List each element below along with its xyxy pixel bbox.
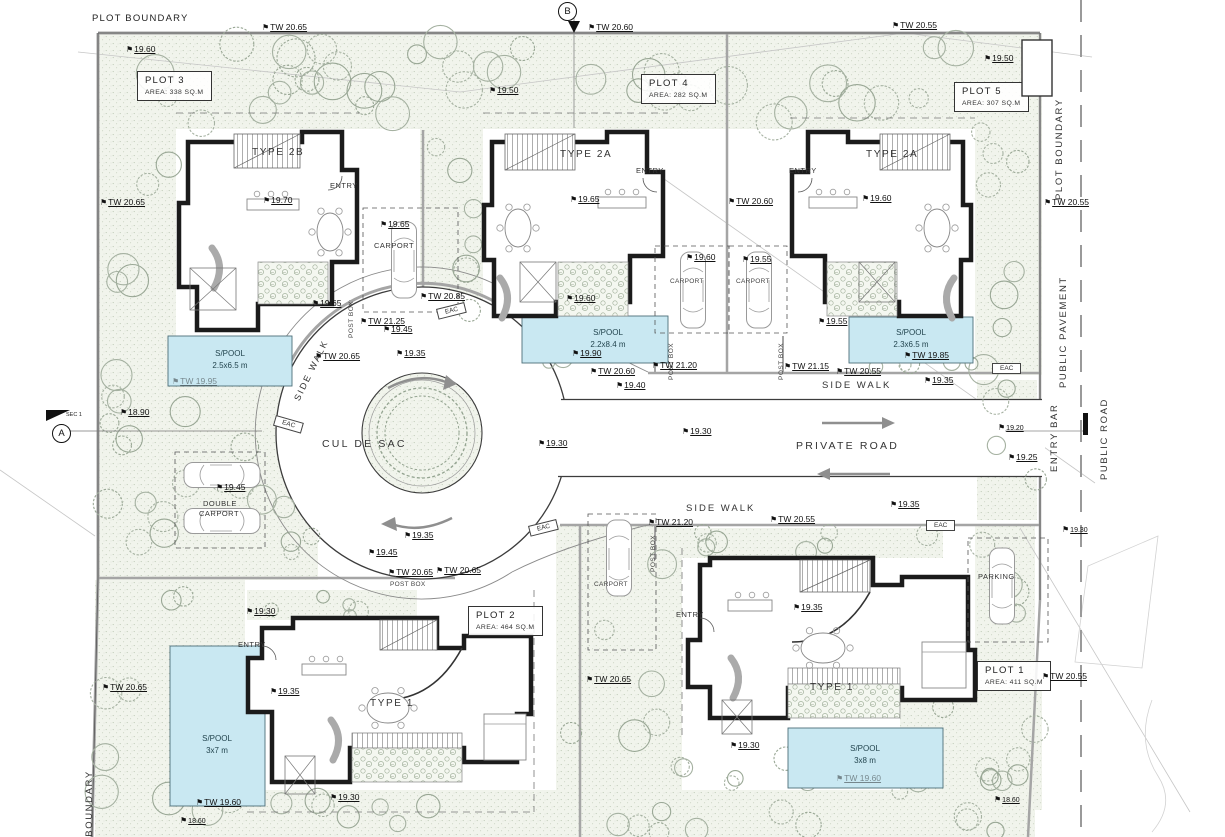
plot-name: PLOT 1 bbox=[985, 665, 1043, 676]
level-text: 19.60 bbox=[574, 293, 595, 303]
survey-marker-icon: ⚑ bbox=[616, 381, 623, 390]
level-19-55: ⚑19.55 bbox=[742, 254, 771, 264]
level-tw-20-65: ⚑TW 20.65 bbox=[262, 22, 307, 32]
level-19-45: ⚑19.45 bbox=[383, 324, 412, 334]
label-carport: CARPORT bbox=[199, 509, 239, 518]
label-post-box: POST BOX bbox=[650, 535, 657, 572]
level-tw-21-20: ⚑TW 21.20 bbox=[648, 517, 693, 527]
pool-size: 3x8 m bbox=[850, 756, 880, 765]
survey-marker-icon: ⚑ bbox=[588, 23, 595, 32]
level-19-60: ⚑19.60 bbox=[566, 293, 595, 303]
label-side-walk: SIDE WALK bbox=[822, 380, 891, 391]
level-text: 19.30 bbox=[338, 792, 359, 802]
level-text: TW 20.65 bbox=[396, 567, 433, 577]
label-eac: EAC bbox=[273, 415, 304, 434]
level-tw-20-65: ⚑TW 20.65 bbox=[586, 674, 631, 684]
annotation-layer: PLOT 3AREA: 338 SQ.MPLOT 4AREA: 282 SQ.M… bbox=[0, 0, 1225, 837]
survey-marker-icon: ⚑ bbox=[1042, 672, 1049, 681]
section-marker-a-note: SEC 1 bbox=[66, 412, 82, 418]
plot-area: AREA: 307 SQ.M bbox=[962, 100, 1021, 107]
level-19-30: ⚑19.30 bbox=[730, 740, 759, 750]
level-text: TW 19.60 bbox=[844, 773, 881, 783]
level-text: TW 20.60 bbox=[598, 366, 635, 376]
level-text: TW 21.20 bbox=[660, 360, 697, 370]
survey-marker-icon: ⚑ bbox=[770, 515, 777, 524]
plot-area: AREA: 282 SQ.M bbox=[649, 92, 708, 99]
level-19-30: ⚑19.30 bbox=[682, 426, 711, 436]
pool-size: 2.2x8.4 m bbox=[590, 340, 625, 349]
survey-marker-icon: ⚑ bbox=[396, 349, 403, 358]
survey-marker-icon: ⚑ bbox=[420, 292, 427, 301]
level-19-35: ⚑19.35 bbox=[404, 530, 433, 540]
level-text: 19.70 bbox=[271, 195, 292, 205]
survey-marker-icon: ⚑ bbox=[728, 197, 735, 206]
survey-marker-icon: ⚑ bbox=[586, 675, 593, 684]
plot-info-plot-1: PLOT 1AREA: 411 SQ.M bbox=[977, 661, 1051, 691]
level-text: 19.35 bbox=[932, 375, 953, 385]
site-plan: PLOT 3AREA: 338 SQ.MPLOT 4AREA: 282 SQ.M… bbox=[0, 0, 1225, 837]
level-text: 19.60 bbox=[134, 44, 155, 54]
plot-boundary-right-label: PLOT BOUNDARY bbox=[1054, 98, 1065, 200]
level-19-45: ⚑19.45 bbox=[368, 547, 397, 557]
level-text: 19.45 bbox=[224, 482, 245, 492]
survey-marker-icon: ⚑ bbox=[102, 683, 109, 692]
level-19-20: ⚑19.20 bbox=[998, 423, 1024, 432]
survey-marker-icon: ⚑ bbox=[818, 317, 825, 326]
survey-marker-icon: ⚑ bbox=[263, 196, 270, 205]
level-text: 18.60 bbox=[1002, 797, 1020, 804]
survey-marker-icon: ⚑ bbox=[784, 362, 791, 371]
level-text: TW 20.55 bbox=[778, 514, 815, 524]
level-tw-20-55: ⚑TW 20.55 bbox=[892, 20, 937, 30]
level-text: 19.35 bbox=[412, 530, 433, 540]
level-19-30: ⚑19.30 bbox=[246, 606, 275, 616]
plot-area: AREA: 464 SQ.M bbox=[476, 624, 535, 631]
level-text: 19.25 bbox=[1016, 452, 1037, 462]
plot-name: PLOT 3 bbox=[145, 75, 204, 86]
level-19-35: ⚑19.35 bbox=[890, 499, 919, 509]
survey-marker-icon: ⚑ bbox=[388, 568, 395, 577]
survey-marker-icon: ⚑ bbox=[180, 816, 187, 825]
survey-marker-icon: ⚑ bbox=[984, 54, 991, 63]
house-type-label: TYPE 2B bbox=[252, 147, 304, 158]
survey-marker-icon: ⚑ bbox=[330, 793, 337, 802]
level-tw-20-85: ⚑TW 20.85 bbox=[420, 291, 465, 301]
level-19-60: ⚑19.60 bbox=[126, 44, 155, 54]
public-pavement-label: PUBLIC PAVEMENT bbox=[1058, 276, 1069, 388]
level-text: TW 19.85 bbox=[912, 350, 949, 360]
level-text: 19.55 bbox=[826, 316, 847, 326]
label-entry: ENTRY bbox=[330, 181, 358, 190]
level-19-90: ⚑19.90 bbox=[572, 348, 601, 358]
level-tw-20-65: ⚑TW 20.65 bbox=[388, 567, 433, 577]
pool-size: 2.5x6.5 m bbox=[212, 361, 247, 370]
level-tw-20-55: ⚑TW 20.55 bbox=[1042, 671, 1087, 681]
survey-marker-icon: ⚑ bbox=[1062, 525, 1069, 534]
level-text: 19.55 bbox=[750, 254, 771, 264]
label-side-walk: SIDE WALK bbox=[686, 503, 755, 514]
level-text: 19.30 bbox=[546, 438, 567, 448]
level-text: TW 20.85 bbox=[428, 291, 465, 301]
label-private-road: PRIVATE ROAD bbox=[796, 440, 899, 452]
plot-area: AREA: 338 SQ.M bbox=[145, 89, 204, 96]
level-text: 19.90 bbox=[580, 348, 601, 358]
level-text: 19.35 bbox=[404, 348, 425, 358]
survey-marker-icon: ⚑ bbox=[246, 607, 253, 616]
label-carport: CARPORT bbox=[374, 241, 414, 250]
survey-marker-icon: ⚑ bbox=[360, 317, 367, 326]
survey-marker-icon: ⚑ bbox=[652, 361, 659, 370]
label-eac: EAC bbox=[992, 363, 1021, 374]
house-type-label: TYPE 2A bbox=[560, 149, 612, 160]
level-text: TW 20.55 bbox=[900, 20, 937, 30]
level-tw-20-60: ⚑TW 20.60 bbox=[728, 196, 773, 206]
pool-label: S/POOL bbox=[850, 744, 880, 753]
pool-size: 3x7 m bbox=[202, 746, 232, 755]
level-19-50: ⚑19.50 bbox=[984, 53, 1013, 63]
level-text: TW 21.15 bbox=[792, 361, 829, 371]
section-marker-b: B bbox=[558, 2, 577, 21]
plot-boundary-bottom-label: PLOT BOUNDARY bbox=[84, 770, 95, 837]
survey-marker-icon: ⚑ bbox=[836, 774, 843, 783]
plot-name: PLOT 4 bbox=[649, 78, 708, 89]
level-text: TW 20.65 bbox=[444, 565, 481, 575]
survey-marker-icon: ⚑ bbox=[404, 531, 411, 540]
level-text: 19.30 bbox=[738, 740, 759, 750]
label-entry: ENTRY bbox=[636, 166, 664, 175]
survey-marker-icon: ⚑ bbox=[383, 325, 390, 334]
survey-marker-icon: ⚑ bbox=[998, 423, 1005, 432]
survey-marker-icon: ⚑ bbox=[572, 349, 579, 358]
section-marker-b-arrow-icon bbox=[568, 21, 580, 33]
level-text: TW 20.60 bbox=[596, 22, 633, 32]
plot-info-plot-3: PLOT 3AREA: 338 SQ.M bbox=[137, 71, 212, 101]
label-carport: CARPORT bbox=[736, 278, 770, 285]
level-19-35: ⚑19.35 bbox=[270, 686, 299, 696]
level-text: 19.60 bbox=[694, 252, 715, 262]
level-tw-19-60: ⚑TW 19.60 bbox=[196, 797, 241, 807]
level-19-35: ⚑19.35 bbox=[924, 375, 953, 385]
level-tw-20-55: ⚑TW 20.55 bbox=[836, 366, 881, 376]
survey-marker-icon: ⚑ bbox=[262, 23, 269, 32]
level-text: 19.65 bbox=[388, 219, 409, 229]
level-text: 19.60 bbox=[870, 193, 891, 203]
house-type-label: TYPE 1 bbox=[810, 682, 854, 693]
level-19-40: ⚑19.40 bbox=[616, 380, 645, 390]
label-double: DOUBLE bbox=[203, 499, 237, 508]
level-19-50: ⚑19.50 bbox=[489, 85, 518, 95]
label-s-pool: S/POOL3x7 m bbox=[202, 734, 232, 755]
level-text: TW 19.95 bbox=[180, 376, 217, 386]
survey-marker-icon: ⚑ bbox=[436, 566, 443, 575]
level-18-60: ⚑18.60 bbox=[994, 795, 1020, 804]
level-19-55: ⚑19.55 bbox=[818, 316, 847, 326]
label-side-walk: SIDE WALK bbox=[292, 338, 330, 402]
level-text: TW 20.65 bbox=[594, 674, 631, 684]
level-text: TW 19.60 bbox=[204, 797, 241, 807]
level-text: TW 20.65 bbox=[108, 197, 145, 207]
pool-size: 2.3x6.5 m bbox=[893, 340, 928, 349]
level-tw-19-95: ⚑TW 19.95 bbox=[172, 376, 217, 386]
level-text: 19.65 bbox=[320, 298, 341, 308]
level-tw-19-60: ⚑TW 19.60 bbox=[836, 773, 881, 783]
level-text: 19.30 bbox=[254, 606, 275, 616]
level-text: TW 20.55 bbox=[1050, 671, 1087, 681]
section-marker-a: A bbox=[52, 424, 71, 443]
survey-marker-icon: ⚑ bbox=[312, 299, 319, 308]
level-text: TW 20.65 bbox=[270, 22, 307, 32]
label-parking: PARKING bbox=[978, 572, 1015, 581]
bins-enclosure bbox=[1018, 38, 1054, 98]
label-s-pool: S/POOL2.5x6.5 m bbox=[212, 349, 247, 370]
level-text: 19.45 bbox=[376, 547, 397, 557]
survey-marker-icon: ⚑ bbox=[590, 367, 597, 376]
public-road-label: PUBLIC ROAD bbox=[1099, 398, 1110, 480]
level-text: 19.40 bbox=[624, 380, 645, 390]
level-19-35: ⚑19.35 bbox=[396, 348, 425, 358]
level-text: 18.90 bbox=[128, 407, 149, 417]
survey-marker-icon: ⚑ bbox=[924, 376, 931, 385]
level-text: 19.35 bbox=[801, 602, 822, 612]
level-text: 19.35 bbox=[278, 686, 299, 696]
survey-marker-icon: ⚑ bbox=[100, 198, 107, 207]
level-tw-20-65: ⚑TW 20.65 bbox=[100, 197, 145, 207]
house-type-label: TYPE 1 bbox=[370, 698, 414, 709]
survey-marker-icon: ⚑ bbox=[368, 548, 375, 557]
survey-marker-icon: ⚑ bbox=[172, 377, 179, 386]
survey-marker-icon: ⚑ bbox=[570, 195, 577, 204]
survey-marker-icon: ⚑ bbox=[904, 351, 911, 360]
label-carport: CARPORT bbox=[670, 278, 704, 285]
plot-boundary-top-label: PLOT BOUNDARY bbox=[92, 13, 189, 24]
label-entry: ENTRY bbox=[238, 640, 266, 649]
level-text: 19.50 bbox=[992, 53, 1013, 63]
level-text: 19.30 bbox=[690, 426, 711, 436]
survey-marker-icon: ⚑ bbox=[742, 255, 749, 264]
survey-marker-icon: ⚑ bbox=[216, 483, 223, 492]
plot-info-plot-4: PLOT 4AREA: 282 SQ.M bbox=[641, 74, 716, 104]
label-eac: EAC bbox=[528, 519, 559, 537]
survey-marker-icon: ⚑ bbox=[1008, 453, 1015, 462]
level-19-60: ⚑19.60 bbox=[686, 252, 715, 262]
survey-marker-icon: ⚑ bbox=[120, 408, 127, 417]
survey-marker-icon: ⚑ bbox=[566, 294, 573, 303]
survey-marker-icon: ⚑ bbox=[793, 603, 800, 612]
plot-name: PLOT 5 bbox=[962, 86, 1021, 97]
survey-marker-icon: ⚑ bbox=[270, 687, 277, 696]
level-18-90: ⚑18.90 bbox=[120, 407, 149, 417]
level-19-45: ⚑19.45 bbox=[216, 482, 245, 492]
survey-marker-icon: ⚑ bbox=[862, 194, 869, 203]
level-text: TW 20.65 bbox=[323, 351, 360, 361]
level-text: 19.20 bbox=[1006, 425, 1024, 432]
survey-marker-icon: ⚑ bbox=[994, 795, 1001, 804]
level-19-65: ⚑19.65 bbox=[380, 219, 409, 229]
survey-marker-icon: ⚑ bbox=[682, 427, 689, 436]
level-tw-20-55: ⚑TW 20.55 bbox=[770, 514, 815, 524]
level-tw-20-65: ⚑TW 20.65 bbox=[436, 565, 481, 575]
label-entry: ENTRY bbox=[676, 610, 704, 619]
level-19-65: ⚑19.65 bbox=[570, 194, 599, 204]
label-s-pool: S/POOL2.3x6.5 m bbox=[893, 328, 928, 349]
plot-info-plot-2: PLOT 2AREA: 464 SQ.M bbox=[468, 606, 543, 636]
level-19-70: ⚑19.70 bbox=[263, 195, 292, 205]
survey-marker-icon: ⚑ bbox=[892, 21, 899, 30]
label-eac: EAC bbox=[926, 520, 955, 531]
survey-marker-icon: ⚑ bbox=[126, 45, 133, 54]
level-19-60: ⚑19.60 bbox=[862, 193, 891, 203]
level-tw-20-60: ⚑TW 20.60 bbox=[590, 366, 635, 376]
label-s-pool: S/POOL3x8 m bbox=[850, 744, 880, 765]
level-19-25: ⚑19.25 bbox=[1008, 452, 1037, 462]
label-carport: CARPORT bbox=[594, 581, 628, 588]
survey-marker-icon: ⚑ bbox=[1044, 198, 1051, 207]
level-text: 19.50 bbox=[497, 85, 518, 95]
survey-marker-icon: ⚑ bbox=[380, 220, 387, 229]
label-eac: EAC bbox=[436, 302, 467, 320]
level-18-60: ⚑18.60 bbox=[180, 816, 206, 825]
level-text: 18.60 bbox=[188, 818, 206, 825]
level-tw-19-85: ⚑TW 19.85 bbox=[904, 350, 949, 360]
level-19-65: ⚑19.65 bbox=[312, 298, 341, 308]
label-post-box: POST BOX bbox=[348, 301, 355, 338]
survey-marker-icon: ⚑ bbox=[836, 367, 843, 376]
level-text: 19.30 bbox=[1070, 527, 1088, 534]
level-text: 19.45 bbox=[391, 324, 412, 334]
survey-marker-icon: ⚑ bbox=[648, 518, 655, 527]
entry-bar-label: ENTRY BAR bbox=[1049, 404, 1060, 472]
label-post-box: POST BOX bbox=[390, 581, 426, 588]
level-19-30: ⚑19.30 bbox=[1062, 525, 1088, 534]
level-text: TW 20.55 bbox=[844, 366, 881, 376]
survey-marker-icon: ⚑ bbox=[686, 253, 693, 262]
pool-label: S/POOL bbox=[593, 328, 623, 337]
level-text: 19.35 bbox=[898, 499, 919, 509]
house-type-label: TYPE 2A bbox=[866, 149, 918, 160]
survey-marker-icon: ⚑ bbox=[196, 798, 203, 807]
pool-label: S/POOL bbox=[896, 328, 926, 337]
level-tw-20-55: ⚑TW 20.55 bbox=[1044, 197, 1089, 207]
label-s-pool: S/POOL2.2x8.4 m bbox=[590, 328, 625, 349]
survey-marker-icon: ⚑ bbox=[890, 500, 897, 509]
level-19-35: ⚑19.35 bbox=[793, 602, 822, 612]
pool-label: S/POOL bbox=[202, 734, 232, 743]
level-19-30: ⚑19.30 bbox=[330, 792, 359, 802]
survey-marker-icon: ⚑ bbox=[489, 86, 496, 95]
level-text: 19.65 bbox=[578, 194, 599, 204]
level-text: TW 20.65 bbox=[110, 682, 147, 692]
survey-marker-icon: ⚑ bbox=[730, 741, 737, 750]
level-text: TW 21.20 bbox=[656, 517, 693, 527]
level-tw-21-20: ⚑TW 21.20 bbox=[652, 360, 697, 370]
plot-area: AREA: 411 SQ.M bbox=[985, 679, 1043, 686]
level-tw-21-15: ⚑TW 21.15 bbox=[784, 361, 829, 371]
pool-label: S/POOL bbox=[215, 349, 245, 358]
plot-name: PLOT 2 bbox=[476, 610, 535, 621]
level-tw-20-60: ⚑TW 20.60 bbox=[588, 22, 633, 32]
survey-marker-icon: ⚑ bbox=[538, 439, 545, 448]
level-text: TW 20.60 bbox=[736, 196, 773, 206]
label-cul-de-sac: CUL DE SAC bbox=[322, 438, 407, 450]
level-tw-20-65: ⚑TW 20.65 bbox=[102, 682, 147, 692]
level-19-30: ⚑19.30 bbox=[538, 438, 567, 448]
label-entry: ENTRY bbox=[789, 166, 817, 175]
